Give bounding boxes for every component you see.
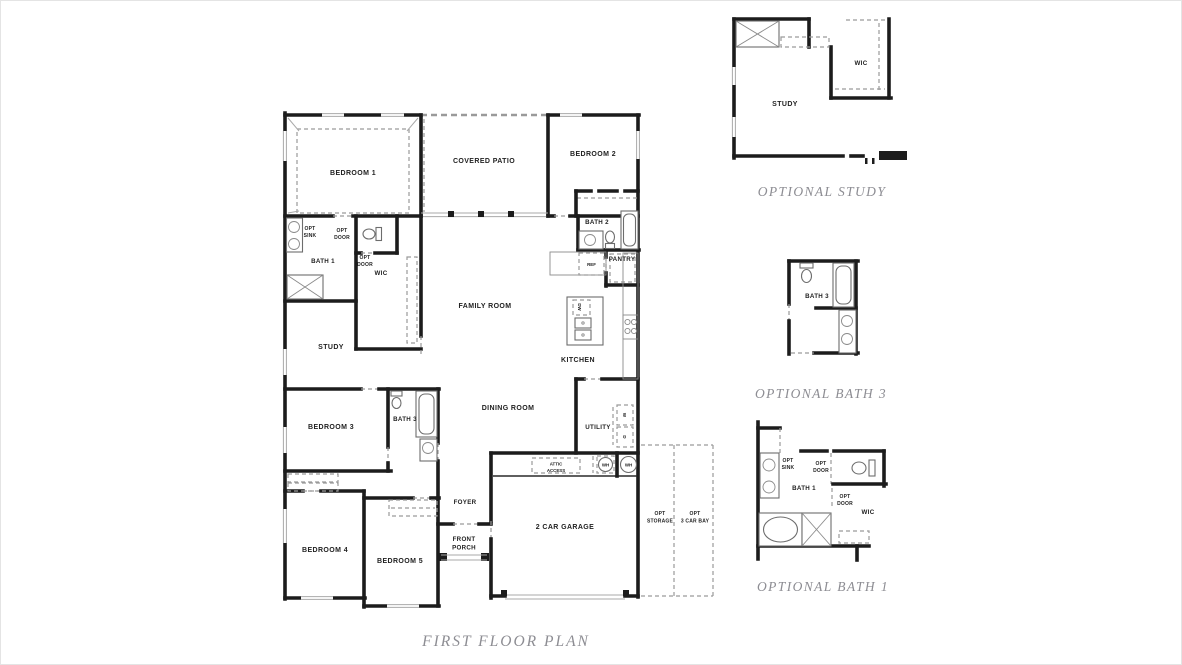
label-bath-3: BATH 3 [393,416,417,423]
label-dw: DW [577,303,582,311]
label-opt-storage-2: STORAGE [647,519,673,525]
page-title: FIRST FLOOR PLAN [421,633,590,650]
bath1-toilet-icon [363,228,382,241]
label-wh-2: WH [625,462,632,467]
label-opt-3-car-bay-1: OPT [690,511,701,517]
label-attic-2: ACCESS [547,468,565,473]
optional-bath-1-shelving [839,531,869,543]
optional-study: STUDY WIC OPTIONAL STUDY [731,19,907,199]
optional-bath-3-vanity [839,310,856,353]
label-opt-sink-2: SINK [304,233,317,239]
optional-bath-1-opt-sink-vanity [760,453,779,498]
kitchen-counter [623,253,638,379]
label-ob1-opt-sink-2: SINK [782,465,795,471]
label-optional-study-study: STUDY [772,101,798,108]
optional-bath-1-tub-icon [759,513,802,546]
label-study: STUDY [318,344,344,351]
label-ob1-opt-door-2a: OPT [840,494,851,500]
label-ob1-opt-sink-1: OPT [783,458,794,464]
label-bedroom-4: BEDROOM 4 [302,547,348,554]
label-dryer: D [622,435,627,438]
label-ob1-opt-door-1a: OPT [816,461,827,467]
label-opt-storage-1: OPT [655,511,666,517]
label-opt-sink-1: OPT [305,226,316,232]
label-bedroom-2: BEDROOM 2 [570,151,616,158]
label-wh-1: WH [602,462,609,467]
caption-optional-bath-1: OPTIONAL BATH 1 [757,579,889,594]
label-utility: UTILITY [585,424,611,431]
caption-optional-bath-3: OPTIONAL BATH 3 [755,386,887,401]
kitchen-island [567,297,603,345]
label-bath-1: BATH 1 [311,258,335,265]
label-garage: 2 CAR GARAGE [536,524,594,531]
floor-plan-page: BEDROOM 1 COVERED PATIO BEDROOM 2 BATH 2… [0,0,1182,665]
utility-washer-dryer [613,405,633,447]
label-ref: REF [587,262,596,267]
label-optional-bath-1: BATH 1 [792,485,816,492]
label-washer: W [622,413,627,418]
optional-study-shower-icon [736,21,779,47]
label-optional-bath-3: BATH 3 [805,293,829,300]
floor-plan-drawing: BEDROOM 1 COVERED PATIO BEDROOM 2 BATH 2… [1,1,1182,665]
label-pantry: PANTRY [609,256,636,263]
label-opt-door-1a: OPT [337,228,348,234]
label-covered-patio: COVERED PATIO [453,158,515,165]
label-family-room: FAMILY ROOM [458,303,511,310]
caption-optional-study: OPTIONAL STUDY [758,184,887,199]
label-opt-3-car-bay-2: 3 CAR BAY [681,519,710,525]
label-attic-1: ATTIC [550,462,563,467]
bath1-shower-icon [287,275,323,299]
label-ob1-wic: WIC [862,509,875,516]
optional-bath-3-tub-icon [833,263,854,307]
bath1-opt-sink-vanity [287,218,303,252]
bedroom1-tray-ceiling [288,118,418,213]
label-bath-2: BATH 2 [585,219,609,226]
label-bedroom-5: BEDROOM 5 [377,558,423,565]
label-wic: WIC [375,270,388,277]
optional-bath-3-toilet-icon [800,263,813,283]
label-opt-door-2b: DOOR [357,262,373,268]
label-bedroom-3: BEDROOM 3 [308,424,354,431]
garage-door [501,590,629,599]
label-front-porch-2: PORCH [452,545,476,552]
label-dining-room: DINING ROOM [482,405,535,412]
optional-bath-1: OPT SINK OPT DOOR BATH 1 OPT DOOR WIC OP… [757,422,889,594]
label-ob1-opt-door-2b: DOOR [837,501,853,507]
optional-bath-3: BATH 3 OPTIONAL BATH 3 [755,261,887,401]
label-kitchen: KITCHEN [561,357,595,364]
label-ob1-opt-door-1b: DOOR [813,468,829,474]
bath3-fixtures [391,391,437,461]
label-opt-door-1b: DOOR [334,235,350,241]
label-optional-study-wic: WIC [855,60,868,67]
label-front-porch-1: FRONT [453,536,476,543]
label-bedroom-1: BEDROOM 1 [330,170,376,177]
optional-bath-1-toilet-icon [852,460,875,476]
optional-bath-1-shower-icon [802,513,831,546]
label-foyer: FOYER [454,499,477,506]
label-opt-door-2a: OPT [360,255,371,261]
porch-slab [439,553,489,561]
kitchen-back-counter [550,252,606,275]
main-plan: BEDROOM 1 COVERED PATIO BEDROOM 2 BATH 2… [282,113,713,609]
optional-study-shelving [781,23,885,93]
